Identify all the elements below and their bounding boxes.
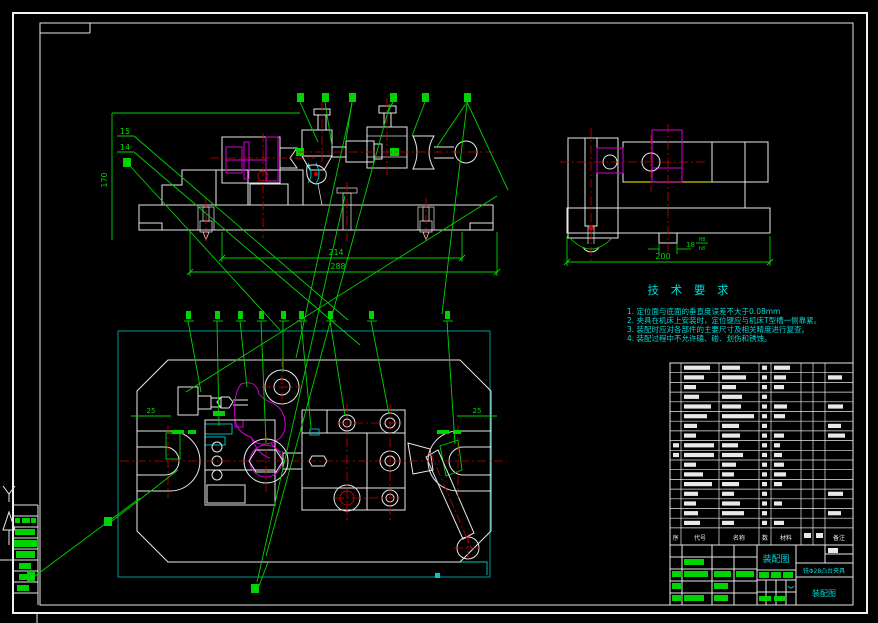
bom-header-code: 代号 [694, 534, 706, 542]
tech-req-title: 技 术 要 求 [648, 283, 733, 297]
cad-canvas[interactable]: 170 15 14 214 288 [0, 0, 878, 623]
bom-table: 序 代号 名称 数 材料 备注 [670, 363, 853, 545]
dim-200: 200 [655, 252, 670, 261]
bom-header-material: 材料 [780, 534, 792, 542]
tech-req-item-4: 4. 装配过程中不允许磕、碰、划伤和锈蚀。 [627, 333, 772, 343]
plan-view-dimensions: 25 25 [27, 311, 497, 593]
dim-25-right: 25 [473, 407, 482, 415]
dim-key-fit-upper: H8 [699, 237, 706, 243]
drawing-sheet: 170 15 14 214 288 [0, 0, 878, 623]
title-drawing-type: 装配图 [762, 553, 789, 565]
dim-214: 214 [328, 248, 343, 257]
dim-key-18: 18 [686, 241, 695, 249]
plan-view [118, 331, 507, 578]
callout-15: 15 [120, 127, 130, 136]
bom-header-name: 名称 [733, 534, 745, 542]
tech-req-item-1: 1. 定位面与底面的垂直度误差不大于0.08mm [627, 306, 780, 316]
bom-header-qty: 数 [762, 534, 768, 542]
front-view-dimensions: 170 15 14 214 288 [100, 93, 500, 345]
bom-header-seq: 序 [672, 534, 678, 542]
dim-288: 288 [330, 262, 345, 271]
title-block: 装配图 铣Φ28凸台夹具 装配图 [670, 545, 853, 605]
front-view [139, 98, 497, 245]
side-view [560, 124, 770, 262]
callout-14: 14 [120, 143, 130, 152]
dim-25-left: 25 [147, 407, 156, 415]
title-product-name: 铣Φ28凸台夹具 [803, 567, 845, 575]
dim-key-fit-lower: h8 [699, 246, 705, 252]
bom-header-remark: 备注 [833, 534, 845, 542]
dim-height: 170 [100, 172, 109, 187]
margin-table-strip [13, 505, 38, 605]
title-sheet-label: 装配图 [812, 588, 836, 598]
technical-requirements: 技 术 要 求 1. 定位面与底面的垂直度误差不大于0.08mm 2. 夹具在机… [627, 283, 821, 343]
tech-req-item-2: 2. 夹具在机床上安装时，定位键应与机床T型槽一侧靠紧。 [627, 315, 821, 325]
tech-req-item-3: 3. 装配时应对各部件的主要尺寸及相关精度进行复查。 [627, 324, 809, 334]
